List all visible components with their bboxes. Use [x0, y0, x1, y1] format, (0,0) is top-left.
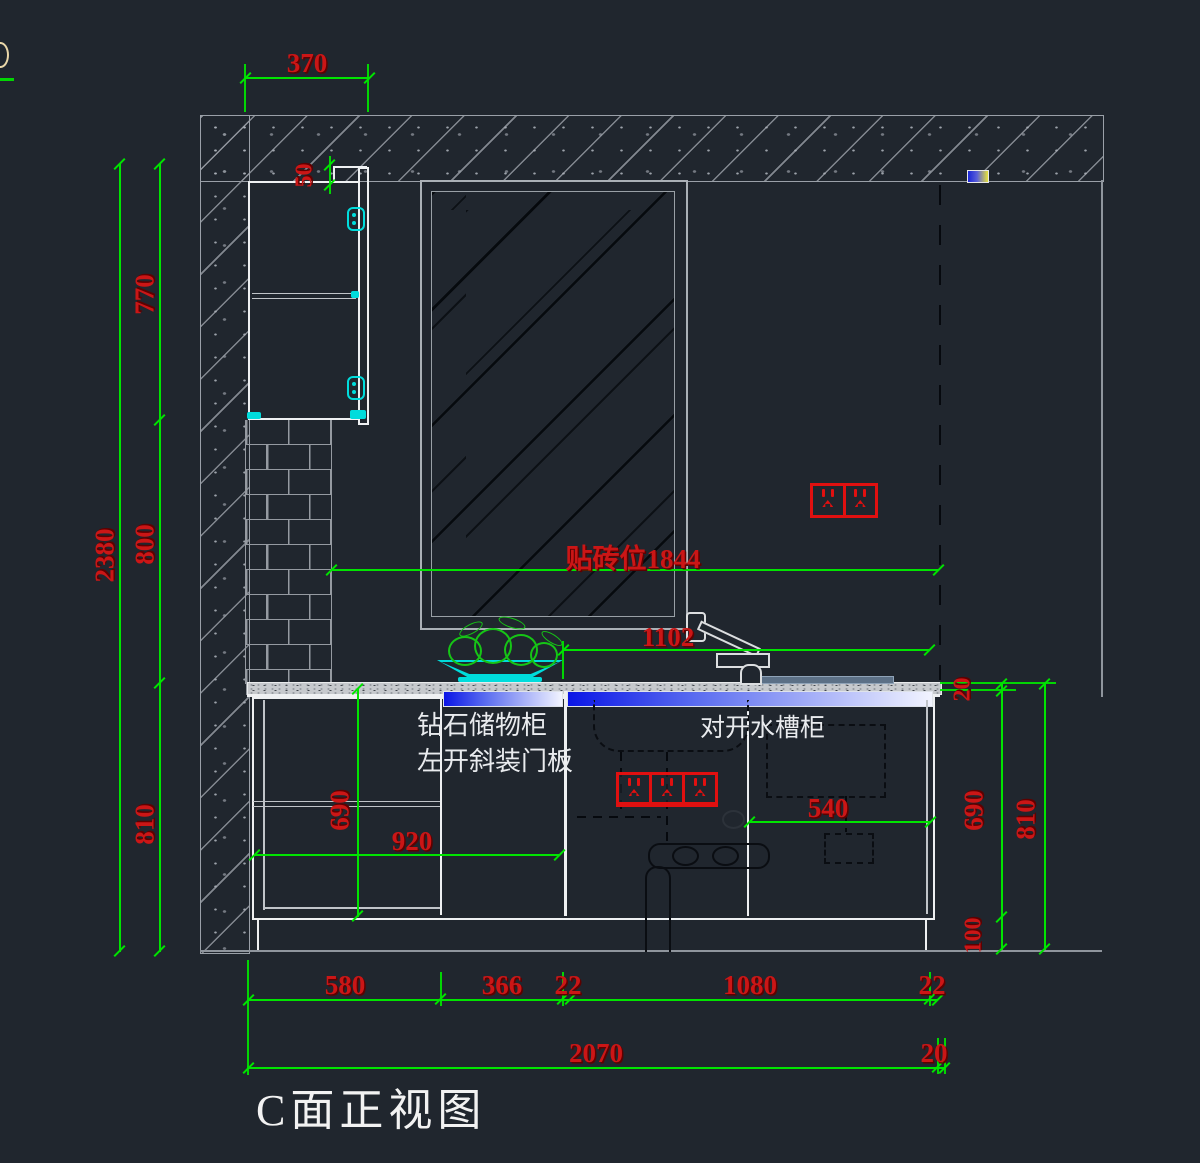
dim-line-mid-690: [357, 688, 359, 917]
witness-line: [562, 641, 564, 679]
sink-cabinet-label: 对开水槽柜: [700, 708, 825, 744]
hinge-plate: [247, 412, 261, 419]
dim-text-22a: 22: [518, 970, 618, 1001]
socket: [813, 486, 846, 515]
gradient-legend-chip: [967, 170, 989, 183]
wall-outlet-double: [810, 483, 878, 518]
dim-text-mid-690: 690: [325, 771, 356, 851]
brick-row: [246, 520, 331, 545]
brick-row: [246, 470, 331, 495]
hinge-plate: [350, 410, 366, 419]
dim-line-right-810: [1044, 683, 1046, 950]
dim-text-580: 580: [295, 970, 395, 1001]
dim-text-810: 810: [130, 785, 161, 865]
brick-row: [246, 595, 331, 620]
wall-cabinet-shelf: [252, 293, 356, 299]
storage-cabinet-label-line2: 左开斜装门板: [417, 741, 573, 778]
brick-row: [246, 645, 331, 670]
dim-text-tile-zone: 贴砖位1844: [538, 537, 728, 576]
shelf-support: [351, 291, 359, 298]
dim-text-20: 20: [884, 1038, 984, 1069]
left-section-bottom: [263, 907, 440, 909]
cabinet-divider-2: [564, 691, 567, 916]
socket: [619, 775, 652, 802]
storage-cabinet-label-line1: 钻石储物柜: [417, 705, 547, 742]
dim-text-920: 920: [362, 826, 462, 857]
hidden-supply-stub: [577, 816, 661, 818]
dim-text-right-100: 100: [961, 896, 988, 976]
sink-rim: [757, 676, 894, 684]
cropped-neighbor-glyph: [0, 42, 9, 68]
hinge-icon: [347, 207, 365, 231]
drain-pipe: [645, 866, 671, 952]
brick-row: [246, 620, 331, 645]
brick-row: [246, 545, 331, 570]
wall-right-edge-line: [1101, 180, 1103, 697]
witness-line: [244, 64, 246, 112]
drawing-title: C面正视图: [256, 1074, 486, 1138]
witness-line: [367, 64, 369, 112]
dim-line-right-chain: [1001, 683, 1003, 950]
p-trap-nut: [712, 846, 739, 866]
hinge-icon: [347, 376, 365, 400]
right-section-inner-wall: [926, 700, 928, 914]
wall-cabinet-crown-line: [333, 166, 367, 168]
toe-kick-right: [925, 918, 927, 950]
socket: [685, 775, 715, 802]
p-trap-nut: [672, 846, 699, 866]
dim-text-370: 370: [262, 48, 352, 79]
brick-row: [246, 495, 331, 520]
dim-leader-circle: [722, 810, 745, 829]
wall-left-hatch: [200, 115, 250, 954]
dim-text-50: 50: [292, 156, 319, 196]
toe-kick-left: [257, 918, 259, 950]
dim-text-800: 800: [130, 505, 161, 585]
socket: [652, 775, 685, 802]
dim-text-770: 770: [130, 255, 161, 335]
brick-row: [246, 445, 331, 470]
dim-text-right-20: 20: [950, 670, 977, 710]
wall-cabinet-box: [248, 181, 360, 420]
socket: [846, 486, 876, 515]
dim-text-22b: 22: [882, 970, 982, 1001]
brick-row: [246, 420, 331, 445]
dim-text-1102: 1102: [608, 622, 728, 653]
fruit: [530, 642, 558, 668]
faucet-spout: [740, 664, 762, 685]
hidden-unit-base: [824, 833, 874, 864]
brick-row: [246, 570, 331, 595]
cropped-neighbor-dimline: [0, 78, 14, 81]
dim-text-2380: 2380: [90, 511, 121, 601]
p-trap-body: [648, 843, 770, 869]
dim-text-540: 540: [778, 793, 878, 824]
witness-line: [247, 960, 249, 1075]
tile-boundary-dashed-line: [939, 185, 941, 680]
dim-text-right-690: 690: [959, 771, 990, 851]
dim-text-1080: 1080: [700, 970, 800, 1001]
cad-elevation-drawing: 370 50 2380 770 800 810 贴砖位1844 1102 690…: [0, 0, 1200, 1163]
fruit-plate-base: [458, 677, 542, 682]
cabinet-outlet-triple: [616, 772, 718, 807]
dim-text-right-810: 810: [1011, 780, 1042, 860]
tile-column: [245, 420, 332, 684]
dim-text-2070: 2070: [546, 1038, 646, 1069]
